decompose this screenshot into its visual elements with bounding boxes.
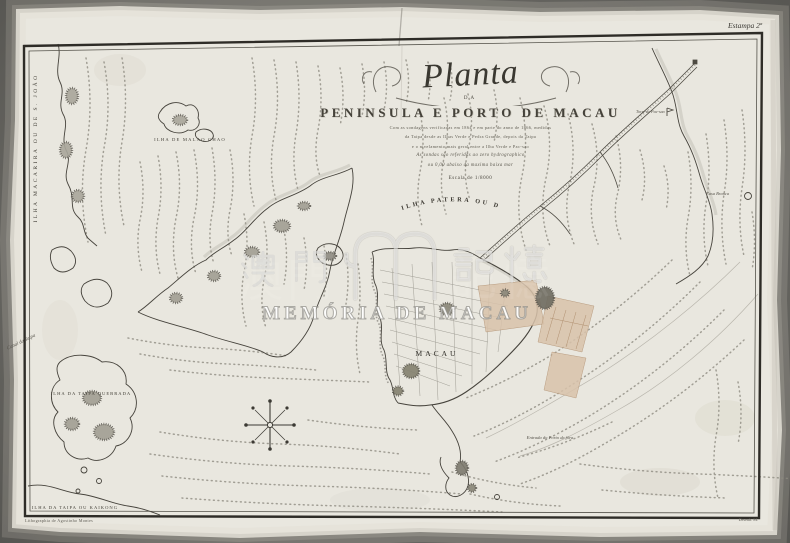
label-ilha-de-malao-chao: ILHA DE MALAO CHAO bbox=[140, 138, 240, 143]
plate-number-note: Estampa 2ª bbox=[690, 22, 762, 30]
imprint-engraver: Desenh. M. bbox=[688, 518, 758, 522]
label-macau: MACAU bbox=[392, 350, 482, 358]
map-title: PENINSULA E PORTO DE MACAU bbox=[298, 105, 643, 121]
title-subtitle-line: ou 0,00 abaixo da maxima baixa mar bbox=[298, 164, 643, 169]
compass-rose bbox=[245, 400, 296, 451]
scanned-map-page: ILHA PATERA OU DA LAPA Planta DA PENINSU… bbox=[0, 0, 790, 543]
title-subtitle-line: Com as sondagens verificadas em 1864 e e… bbox=[298, 126, 643, 130]
title-subtitle-line: e o nivelamento mais geral entre a Ilha … bbox=[298, 145, 643, 149]
scale-note: Escala de 1/8000 bbox=[298, 176, 643, 181]
label-casa-branca: Casa Branca bbox=[706, 192, 729, 196]
label-torre-de-pacsao: Torre de Pac-sao bbox=[636, 110, 665, 114]
title-cartouche: Planta DA PENINSULA E PORTO DE MACAU Com… bbox=[298, 56, 643, 181]
label-ilha-da-taipa-quebrada: ILHA DA TAIPA QUEBRADA bbox=[35, 392, 147, 397]
title-subtitle-line: da Taipa desde as Ilhas Verde e Pedra Gr… bbox=[298, 135, 643, 139]
imprint-lithography: Lithographia de Agostinho Montes bbox=[25, 519, 93, 523]
label-entrada-do-porto: Entrada do Porto de fóra bbox=[498, 436, 602, 441]
title-subtitle-line: As sondas são referidas ao zero hydrogra… bbox=[298, 154, 643, 159]
label-ilha-macarira: ILHA MACARIRA OU DE S. JOÃO bbox=[34, 73, 40, 222]
label-ilha-da-taipa-ou-kaikong: ILHA DA TAIPA OU KAIKONG bbox=[20, 506, 130, 511]
